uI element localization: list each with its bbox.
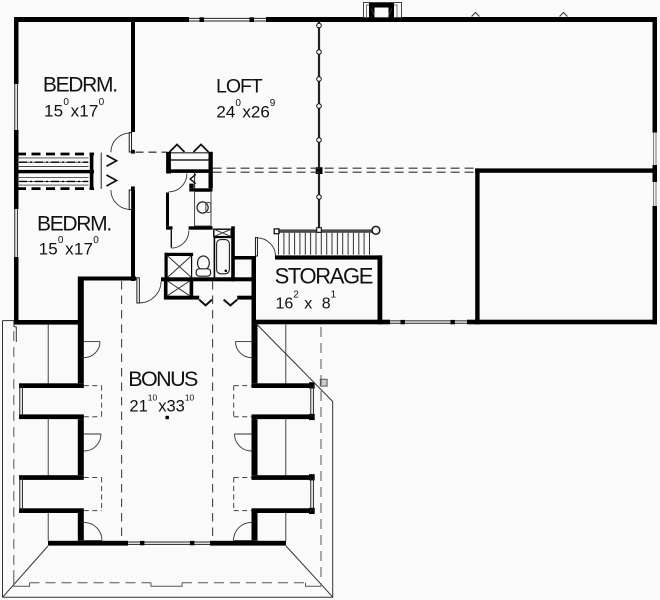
svg-text:STORAGE: STORAGE [275,263,373,288]
svg-text:150x170: 150x170 [44,97,105,121]
svg-text:BEDRM.: BEDRM. [43,74,117,97]
svg-text:BEDRM.: BEDRM. [37,213,111,236]
svg-text:150x170: 150x170 [39,235,100,259]
svg-text:LOFT: LOFT [216,75,263,97]
svg-text:BONUS: BONUS [128,367,198,391]
svg-text:240x269: 240x269 [216,98,275,122]
